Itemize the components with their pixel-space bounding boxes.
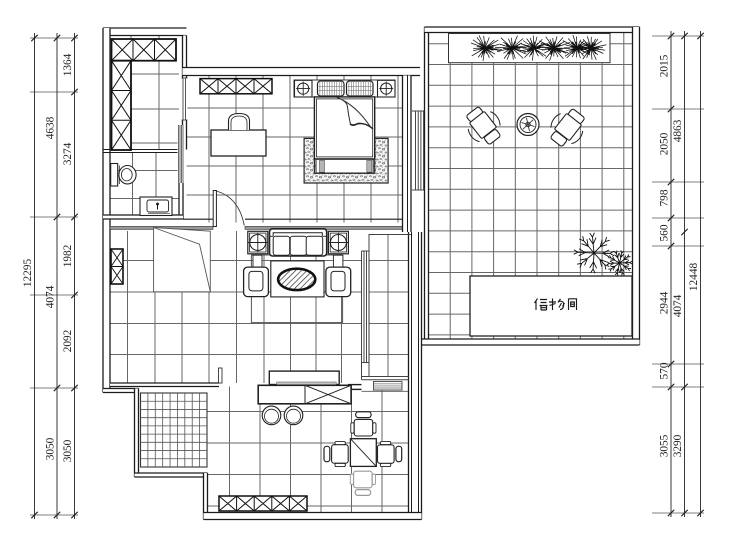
svg-text:3290: 3290	[672, 434, 684, 457]
svg-text:12295: 12295	[22, 259, 34, 288]
svg-text:2050: 2050	[659, 132, 671, 155]
svg-text:3050: 3050	[45, 437, 57, 460]
svg-text:4074: 4074	[45, 285, 57, 308]
svg-text:1364: 1364	[62, 53, 74, 76]
svg-text:12448: 12448	[688, 263, 700, 292]
svg-text:2092: 2092	[62, 329, 74, 352]
svg-text:560: 560	[659, 224, 671, 241]
svg-text:2015: 2015	[659, 54, 671, 77]
svg-text:4638: 4638	[45, 116, 57, 139]
svg-text:1982: 1982	[62, 244, 74, 267]
svg-text:3055: 3055	[659, 434, 671, 457]
svg-text:798: 798	[659, 189, 671, 206]
svg-text:2944: 2944	[659, 291, 671, 314]
svg-text:3274: 3274	[62, 142, 74, 165]
svg-text:4863: 4863	[672, 119, 684, 142]
svg-text:3050: 3050	[62, 439, 74, 462]
svg-text:570: 570	[659, 362, 671, 379]
svg-text:4074: 4074	[672, 294, 684, 317]
